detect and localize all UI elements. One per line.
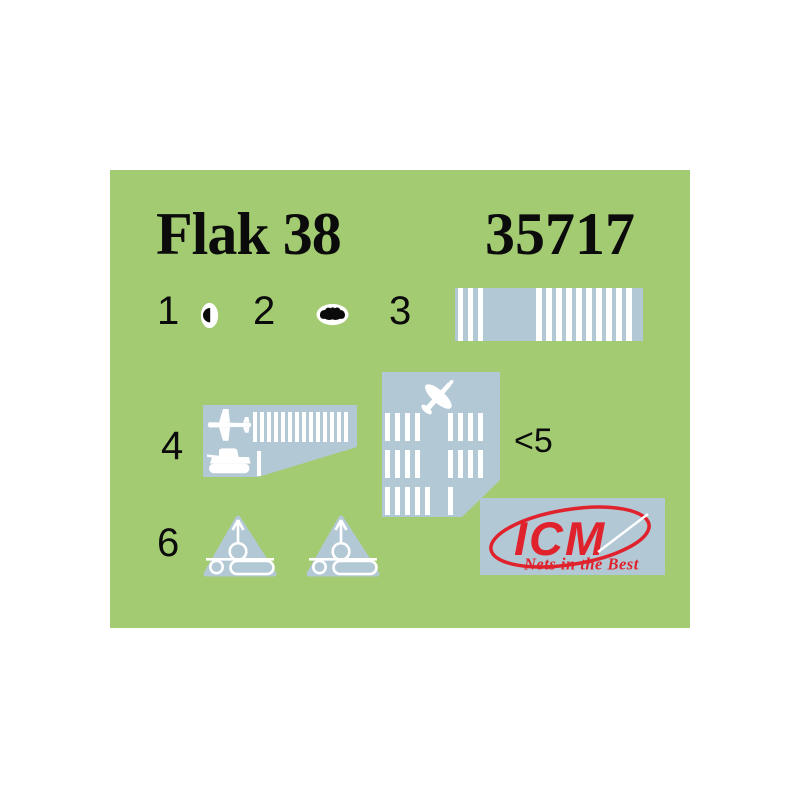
barcode-stripe: [626, 288, 632, 341]
item-2-label: 2: [253, 291, 275, 331]
brand-slogan: Nets in the Best: [523, 555, 639, 574]
jack-stand-marking-decal: [306, 514, 380, 577]
jack-stand-marking-decal: [203, 514, 277, 577]
item-1-label: 1: [157, 291, 179, 331]
gun-shield-blob-decal: [316, 303, 349, 326]
item-3-label: 3: [389, 291, 411, 331]
kill-marks-decal-4: [203, 405, 357, 477]
barcode-stripe: [546, 288, 552, 341]
item-4-label: 4: [161, 426, 183, 466]
barcode-stripe: [468, 288, 473, 341]
barcode-stripe: [606, 288, 612, 341]
kit-number: 35717: [485, 204, 635, 264]
barcode-stripe: [596, 288, 602, 341]
barcode-stripe: [536, 288, 542, 341]
barcode-stripe: [556, 288, 562, 341]
barcode-stripe: [616, 288, 622, 341]
product-image: Flak 38 35717 1 2 3 4: [0, 0, 800, 800]
barcode-stripe: [458, 288, 463, 341]
kill-marks-decal-5: [382, 372, 500, 517]
barcode-stripe: [478, 288, 483, 341]
barcode-stripe: [566, 288, 572, 341]
barcode-stripe: [586, 288, 592, 341]
barcode-stripe: [576, 288, 582, 341]
item-6-label: 6: [157, 523, 179, 563]
decal-sheet: Flak 38 35717 1 2 3 4: [110, 170, 690, 628]
icm-logo-decal: ICM Nets in the Best: [480, 498, 665, 575]
item-5-label: <5: [514, 424, 553, 458]
jack-markings-group: [203, 514, 380, 577]
sight-half-dot-decal: [200, 302, 219, 329]
barcode-stripe-decal: [455, 288, 643, 341]
sheet-title: Flak 38: [156, 204, 341, 264]
